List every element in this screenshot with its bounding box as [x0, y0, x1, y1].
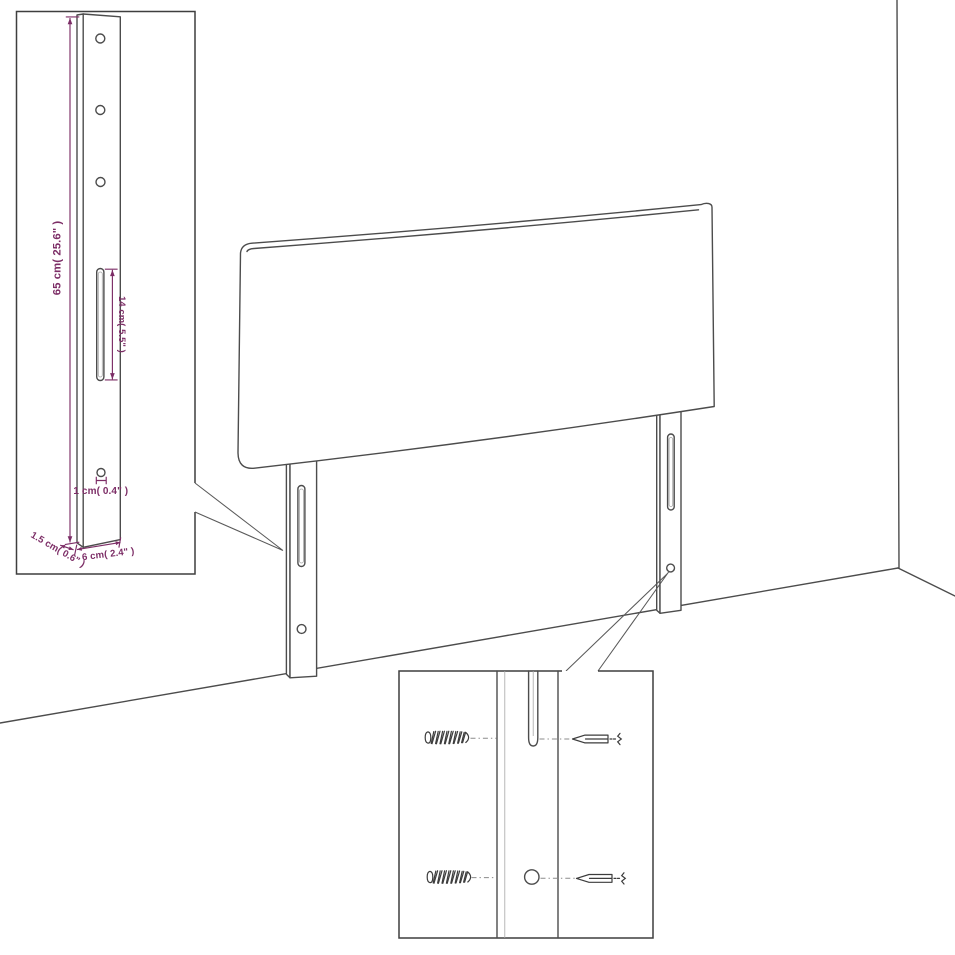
headboard-left-leg: [286, 456, 316, 678]
hardware-inset-callout-lines: [566, 571, 669, 671]
hardware-inset-border: [399, 671, 653, 938]
inset-leg-hole-1: [96, 34, 105, 43]
inset-leg-side-face: [77, 14, 83, 547]
headboard-panel: [238, 203, 714, 468]
right-leg-hole: [667, 564, 675, 572]
dimension-leg-height-label: 65 cm( 25.6" ): [52, 221, 64, 296]
headboard-panel-outline: [238, 203, 714, 468]
product-diagram-image: 65 cm( 25.6" ) 14 cm( 5.5" ) 1 cm( 0.4" …: [0, 0, 955, 955]
right-leg-slot: [668, 434, 675, 510]
leg-detail-drawing: [77, 14, 120, 547]
inset-leg-hole-2: [96, 106, 105, 115]
inset-leg-hole-3: [96, 178, 105, 187]
headboard-assembly: [238, 203, 714, 677]
left-leg-slot: [298, 486, 305, 567]
left-leg-hole: [297, 625, 306, 634]
floor-wall-line-right: [898, 568, 955, 596]
dimension-hole-diameter-label: 1 cm( 0.4" ): [73, 486, 128, 497]
leg-detail-callout-lines: [195, 483, 283, 551]
inset-leg-bottom-hole: [97, 469, 105, 477]
hardware-detail-inset: [399, 571, 669, 938]
dimension-slot-length-label: 14 cm( 5.5" ): [117, 296, 128, 353]
inset-leg-slot: [97, 269, 104, 381]
strip-hole: [525, 870, 539, 884]
wall-corner-line: [897, 0, 899, 568]
diagram-canvas: 65 cm( 25.6" ) 14 cm( 5.5" ) 1 cm( 0.4" …: [0, 0, 955, 955]
